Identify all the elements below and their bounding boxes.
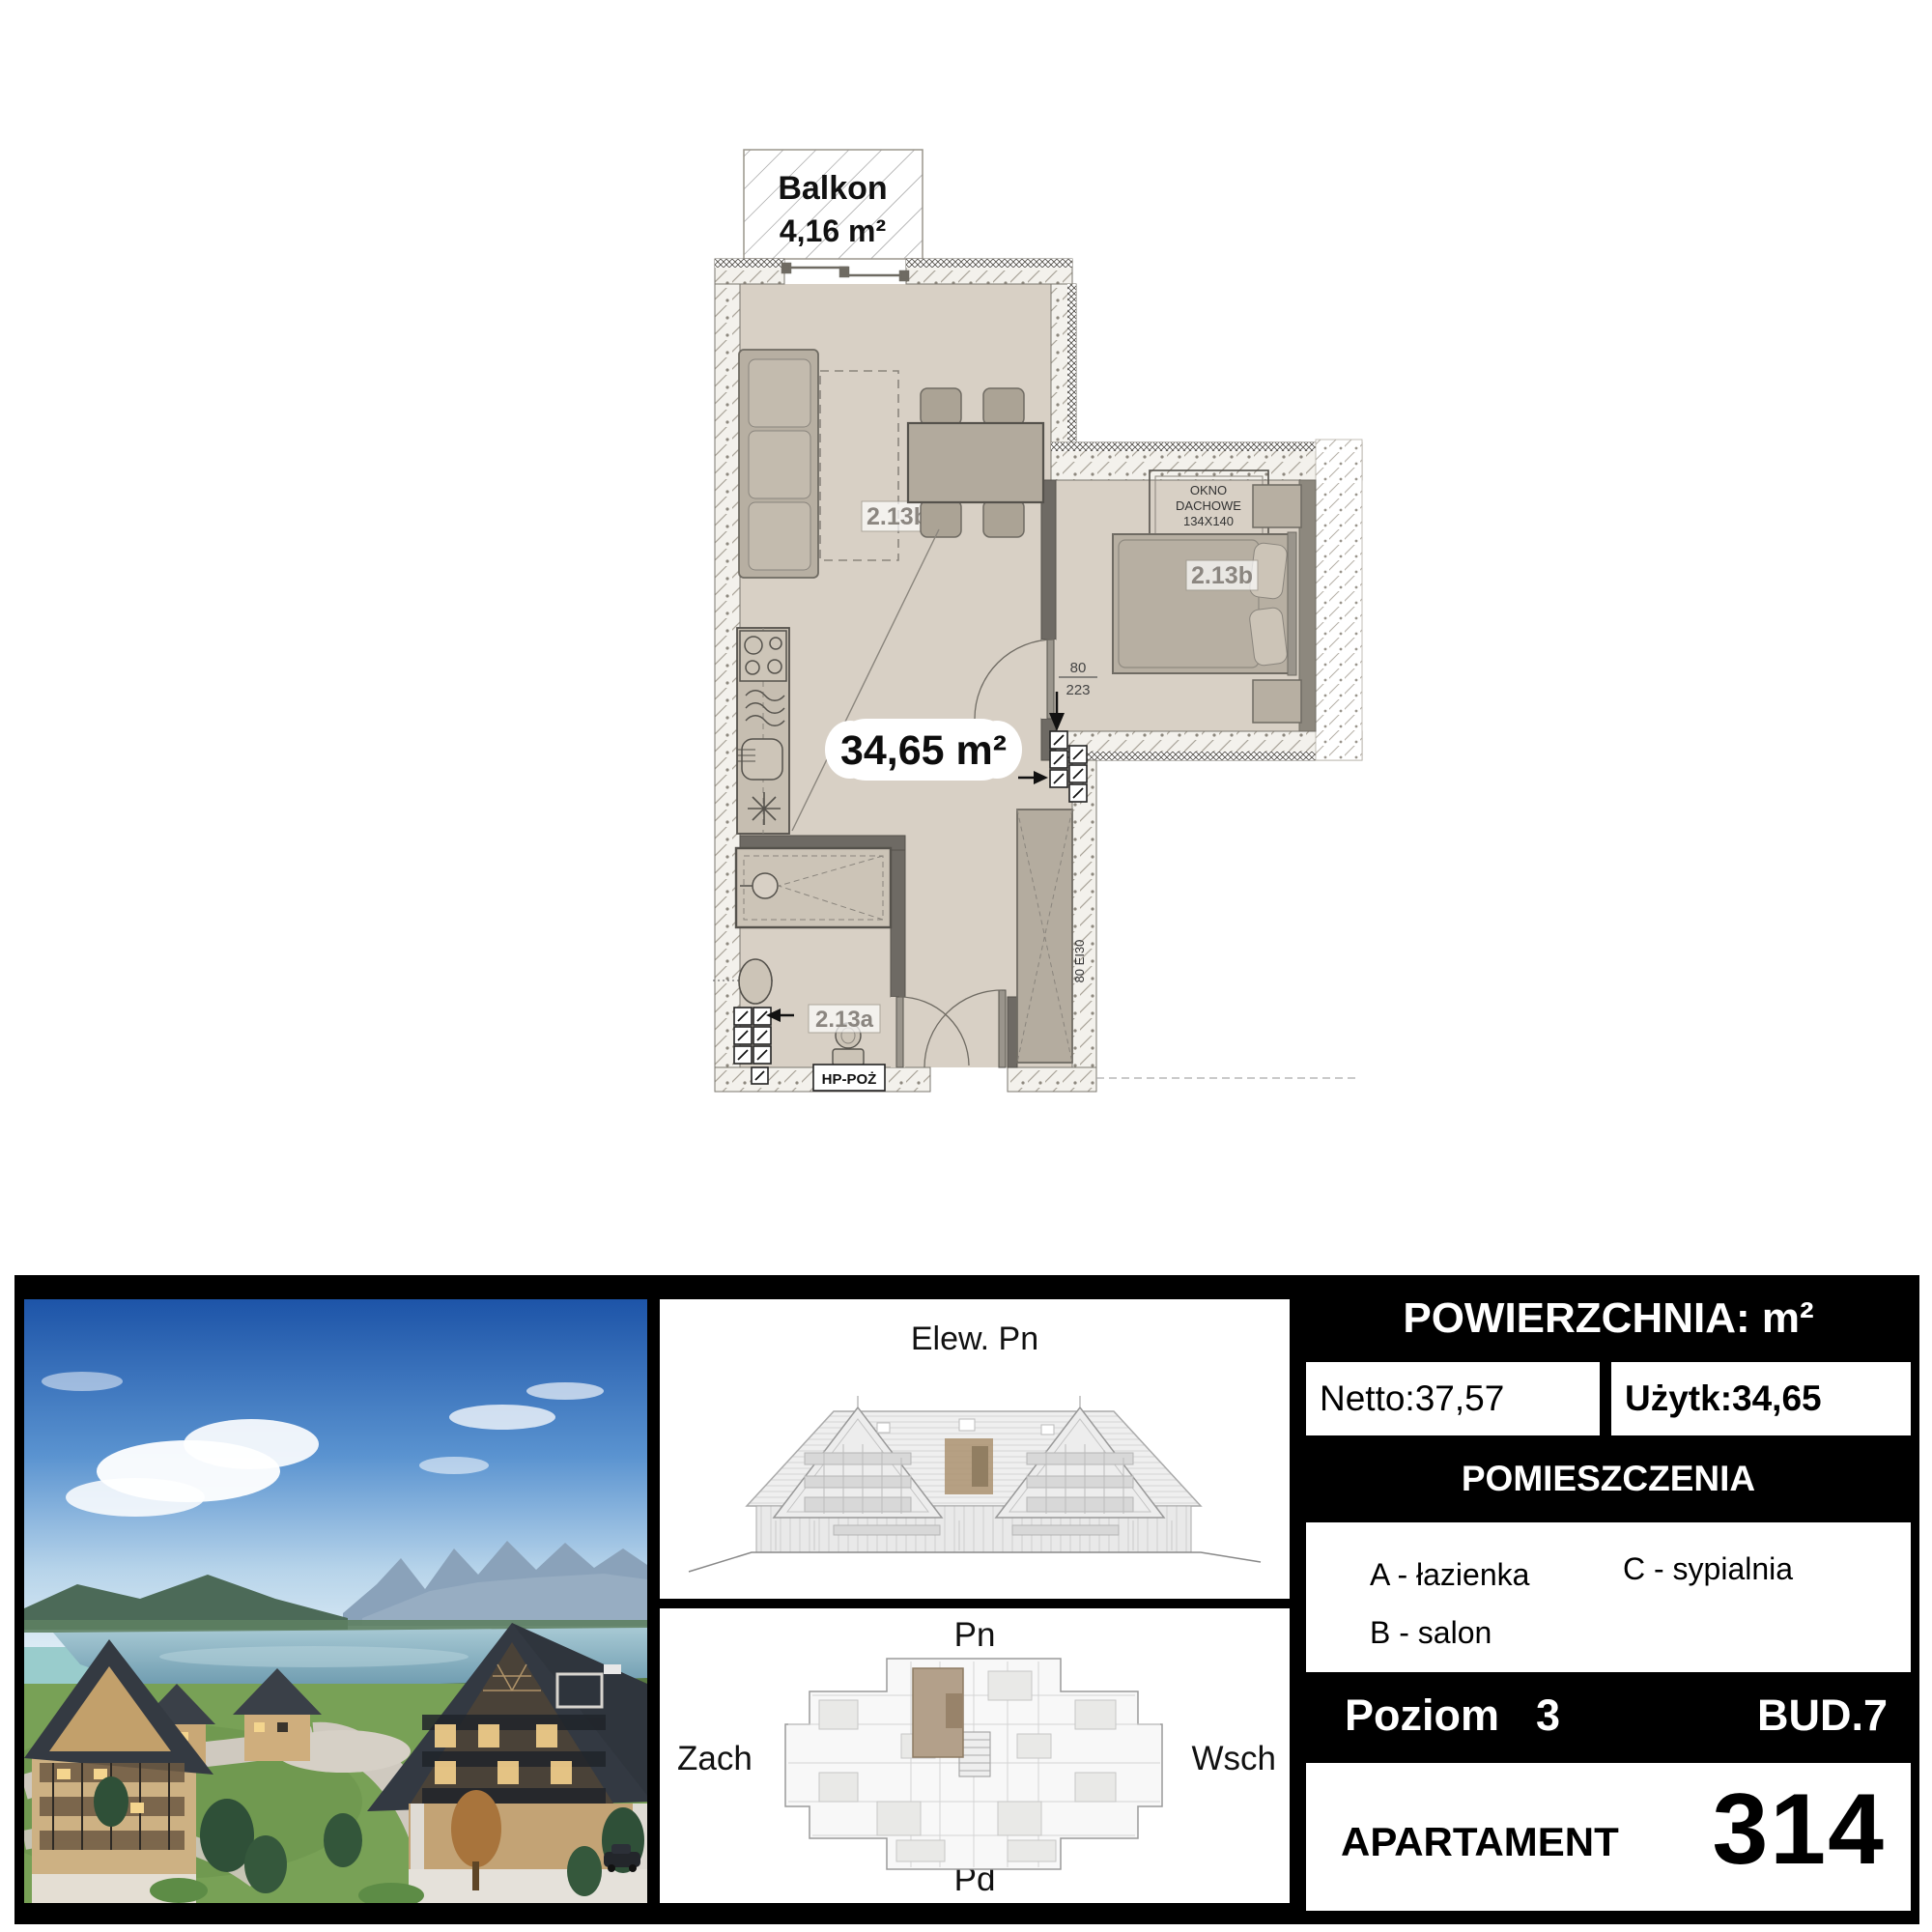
netto-value: 37,57 xyxy=(1415,1378,1505,1418)
balcony-window xyxy=(782,264,908,280)
wardrobe xyxy=(1017,810,1072,1063)
room-c-label: C - sypialnia xyxy=(1623,1551,1793,1587)
info-column: POWIERZCHNIA: m² Netto:37,57 Użytk:34,65… xyxy=(1302,1287,1915,1915)
svg-text:2.13b: 2.13b xyxy=(867,503,928,530)
balcony-area: 4,16 m² xyxy=(780,213,886,248)
skylight-text-2: DACHOWE xyxy=(1176,498,1241,513)
netto-label: Netto: xyxy=(1320,1378,1415,1418)
bottom-strip: Elew. Pn xyxy=(14,1275,1919,1924)
bed xyxy=(1113,532,1296,675)
apartment-card: Balkon 4,16 m² xyxy=(0,0,1932,1932)
level-value: 3 xyxy=(1536,1690,1560,1740)
shower xyxy=(736,848,891,927)
level-label: Poziom xyxy=(1345,1690,1499,1740)
svg-text:223: 223 xyxy=(1065,682,1090,698)
dining-table xyxy=(908,423,1043,502)
floor-plan-drawing: Balkon 4,16 m² xyxy=(541,97,1410,1188)
room-a-label: A - łazienka xyxy=(1370,1557,1529,1593)
balcony-label: Balkon xyxy=(778,170,887,207)
kitchen-counter xyxy=(737,628,789,834)
svg-text:2.13b: 2.13b xyxy=(1191,562,1253,589)
roof-slope-band xyxy=(1316,440,1362,760)
apartment-area-label: 34,65 m² xyxy=(825,719,1022,781)
svg-text:2.13a: 2.13a xyxy=(815,1007,874,1033)
nightstand-top xyxy=(1253,485,1301,527)
bathroom-label: 2.13a xyxy=(809,1005,880,1033)
rooms-header: POMIESZCZENIA xyxy=(1302,1435,1915,1522)
skylight-text-1: OKNO xyxy=(1190,483,1227,497)
netto-box: Netto:37,57 xyxy=(1306,1362,1600,1435)
washbasin xyxy=(739,959,772,1004)
svg-text:34,65 m²: 34,65 m² xyxy=(840,727,1007,774)
svg-text:80: 80 xyxy=(1070,660,1087,676)
building-label: BUD.7 xyxy=(1757,1672,1888,1759)
apartment-label: APARTAMENT xyxy=(1341,1819,1619,1865)
hydrant-label: HP-POŻ xyxy=(813,1065,885,1091)
uzytk-label: Użytk: xyxy=(1625,1378,1732,1418)
resort-photo-render xyxy=(24,1299,647,1903)
site-plan-panel: Pn Zach Wsch Pd xyxy=(660,1608,1290,1903)
highlighted-unit xyxy=(913,1668,963,1757)
apartment-box: APARTAMENT 314 xyxy=(1306,1763,1911,1911)
fire-door-label: 80 EI30 xyxy=(1072,940,1087,983)
site-plan-drawing xyxy=(660,1608,1290,1903)
level-bar: Poziom3 BUD.7 xyxy=(1302,1672,1915,1759)
skylight-text-3: 134X140 xyxy=(1183,514,1234,528)
rooms-legend: A - łazienka C - sypialnia B - salon xyxy=(1306,1522,1911,1672)
resort-photo xyxy=(24,1299,647,1903)
sofa xyxy=(739,350,818,578)
elevation-title: Elew. Pn xyxy=(660,1321,1290,1358)
nightstand-bottom xyxy=(1253,680,1301,723)
bedroom-label: 2.13b xyxy=(1186,560,1258,590)
room-b-label: B - salon xyxy=(1370,1615,1492,1651)
elevation-drawing xyxy=(660,1361,1290,1593)
uzytk-box: Użytk:34,65 xyxy=(1611,1362,1911,1435)
balcony: Balkon 4,16 m² xyxy=(744,150,923,259)
area-header: POWIERZCHNIA: m² xyxy=(1302,1287,1915,1356)
sink xyxy=(737,739,782,780)
svg-text:HP-POŻ: HP-POŻ xyxy=(822,1071,877,1088)
uzytk-value: 34,65 xyxy=(1732,1378,1822,1418)
dishwasher-star xyxy=(748,792,781,825)
elevation-panel: Elew. Pn xyxy=(660,1299,1290,1599)
stair-core xyxy=(959,1732,990,1776)
apartment-number: 314 xyxy=(1712,1773,1886,1888)
stove xyxy=(740,631,786,681)
